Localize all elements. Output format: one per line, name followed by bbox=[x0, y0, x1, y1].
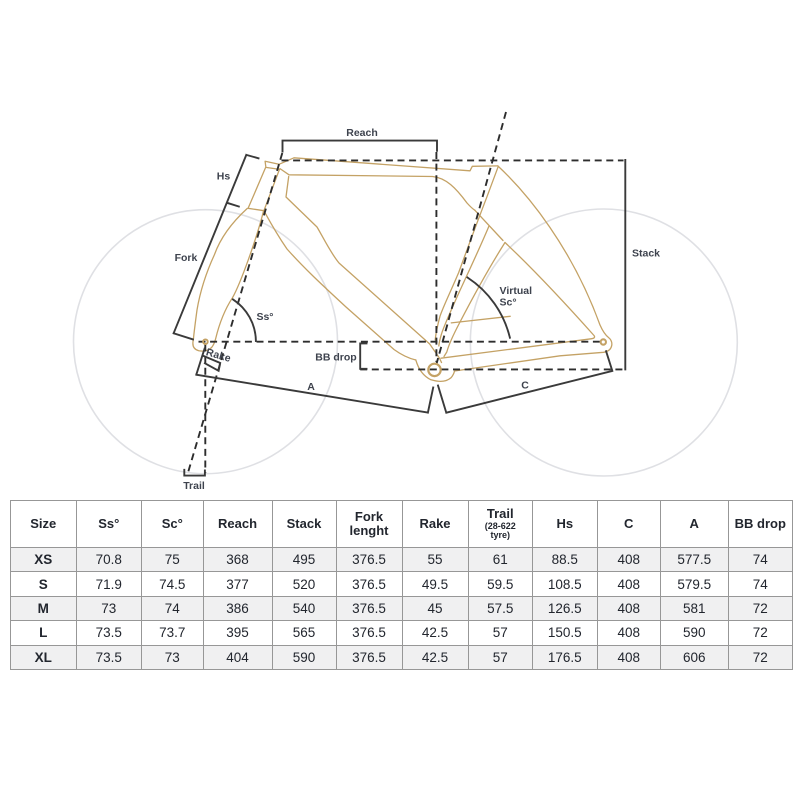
svg-text:Virtual: Virtual bbox=[500, 285, 533, 297]
svg-text:Trail: Trail bbox=[183, 480, 205, 492]
svg-text:Sc°: Sc° bbox=[500, 297, 517, 309]
svg-text:Ss°: Ss° bbox=[256, 311, 273, 323]
svg-text:Reach: Reach bbox=[346, 127, 378, 139]
svg-text:C: C bbox=[521, 380, 529, 392]
svg-text:A: A bbox=[307, 381, 315, 393]
svg-text:BB drop: BB drop bbox=[315, 352, 356, 364]
svg-text:Stack: Stack bbox=[632, 248, 660, 260]
svg-text:Fork: Fork bbox=[175, 252, 198, 264]
svg-text:Hs: Hs bbox=[217, 171, 231, 183]
